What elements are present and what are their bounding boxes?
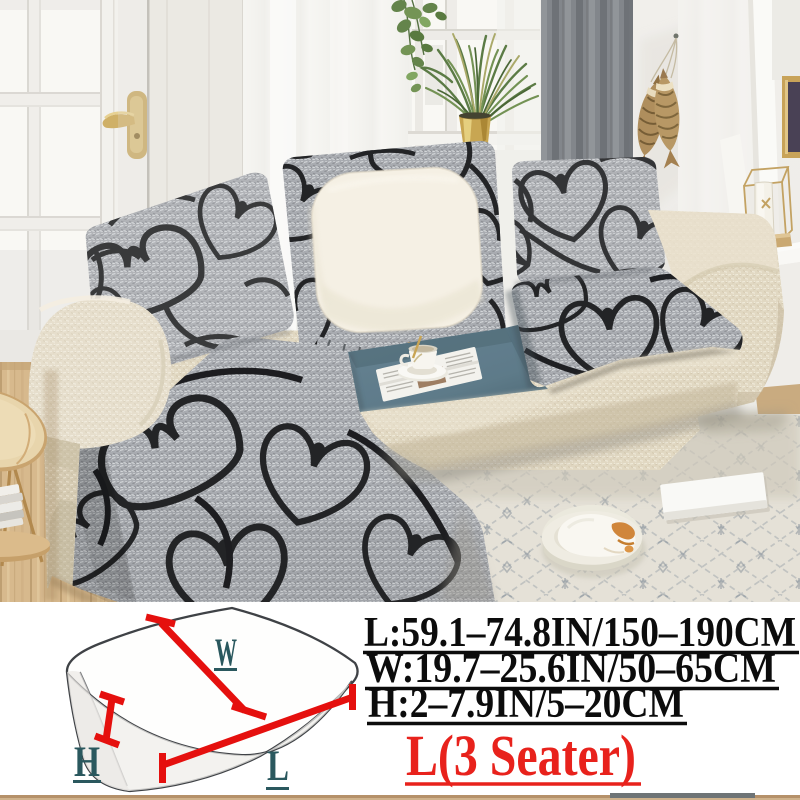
svg-text:H: H [74, 739, 100, 786]
svg-text:W: W [215, 631, 237, 674]
svg-text:L(3 Seater): L(3 Seater) [406, 723, 636, 788]
svg-text:L: L [267, 743, 289, 790]
